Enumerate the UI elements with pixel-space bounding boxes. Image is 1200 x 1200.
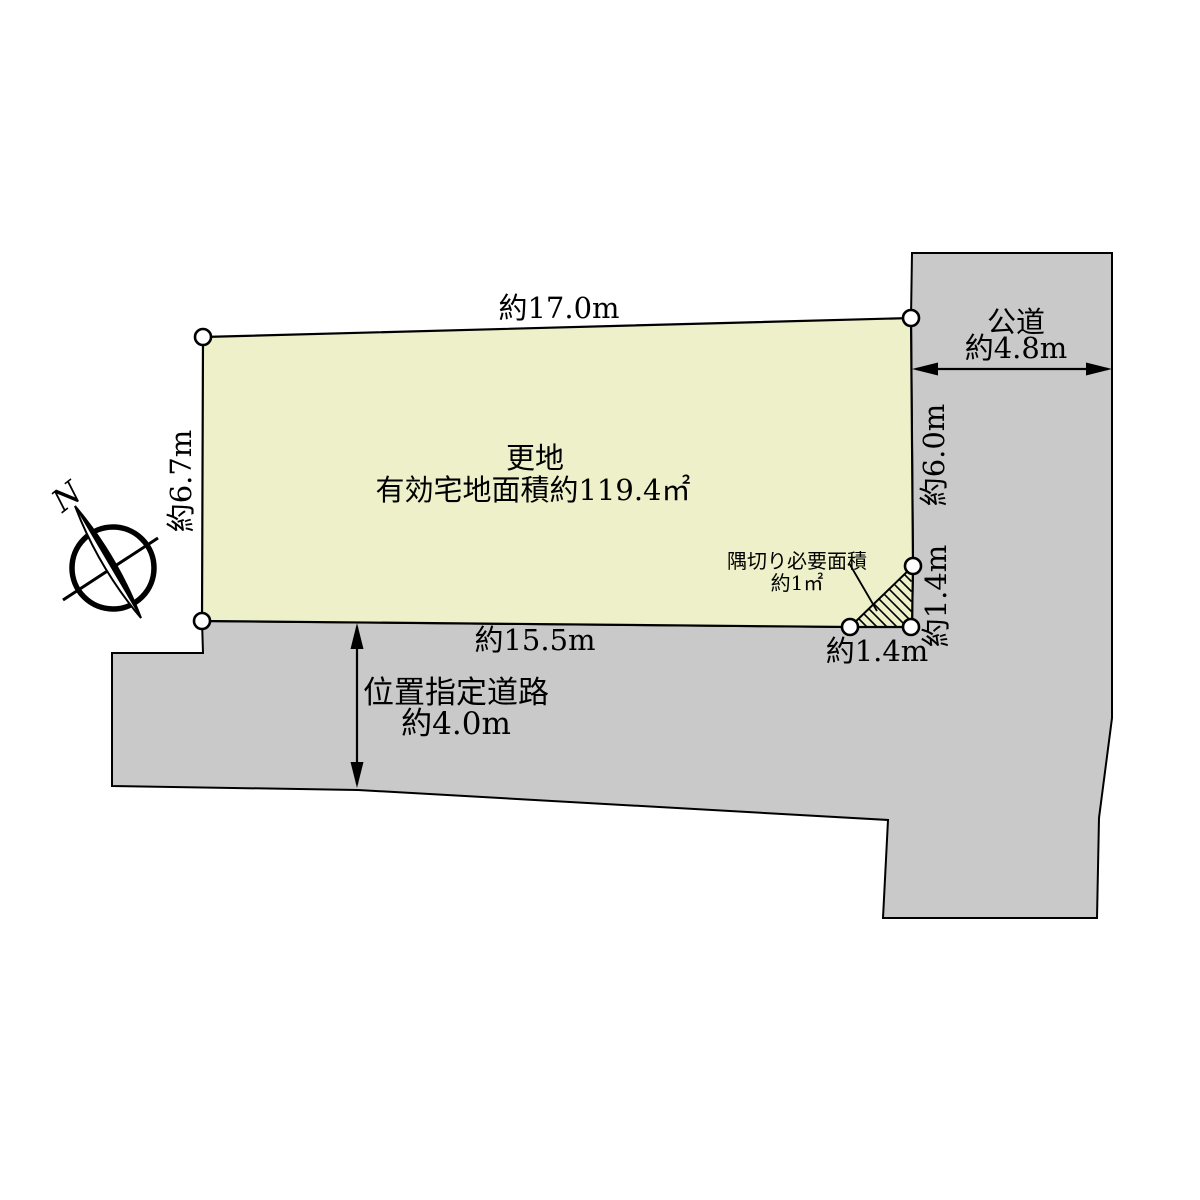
public-road-width: 約4.8m bbox=[965, 331, 1068, 365]
plot-area-label: 有効宅地面積約119.4㎡ bbox=[375, 473, 690, 507]
corner-cut-label-line1: 隅切り必要面積 bbox=[727, 549, 867, 573]
lot-diagram: N 更地 有効宅地面積約119.4㎡ 約17.0m 約6.7m 約6.0m 約1… bbox=[0, 0, 1200, 1200]
survey-point-cut-corner bbox=[903, 619, 919, 635]
north-label: N bbox=[44, 473, 90, 520]
dim-bottom-edge: 約15.5m bbox=[474, 623, 595, 657]
survey-point-cut-left bbox=[842, 619, 858, 635]
compass: N bbox=[44, 473, 158, 618]
plot-status-label: 更地 bbox=[506, 441, 564, 475]
lot-plan-page: N 更地 有効宅地面積約119.4㎡ 約17.0m 約6.7m 約6.0m 約1… bbox=[0, 0, 1200, 1200]
survey-point-top-left bbox=[195, 329, 211, 345]
survey-point-top-right bbox=[903, 310, 919, 326]
dim-bottom-corner-cut: 約1.4m bbox=[826, 634, 929, 668]
dim-top-edge: 約17.0m bbox=[498, 291, 619, 325]
dim-right-edge-upper: 約6.0m bbox=[917, 404, 951, 507]
designated-road-width: 約4.0m bbox=[401, 706, 511, 742]
corner-cut-label-line2: 約1㎡ bbox=[771, 571, 824, 595]
dim-right-corner-cut: 約1.4m bbox=[919, 545, 953, 648]
dim-left-edge: 約6.7m bbox=[164, 430, 198, 533]
survey-point-bottom-left bbox=[194, 613, 210, 629]
